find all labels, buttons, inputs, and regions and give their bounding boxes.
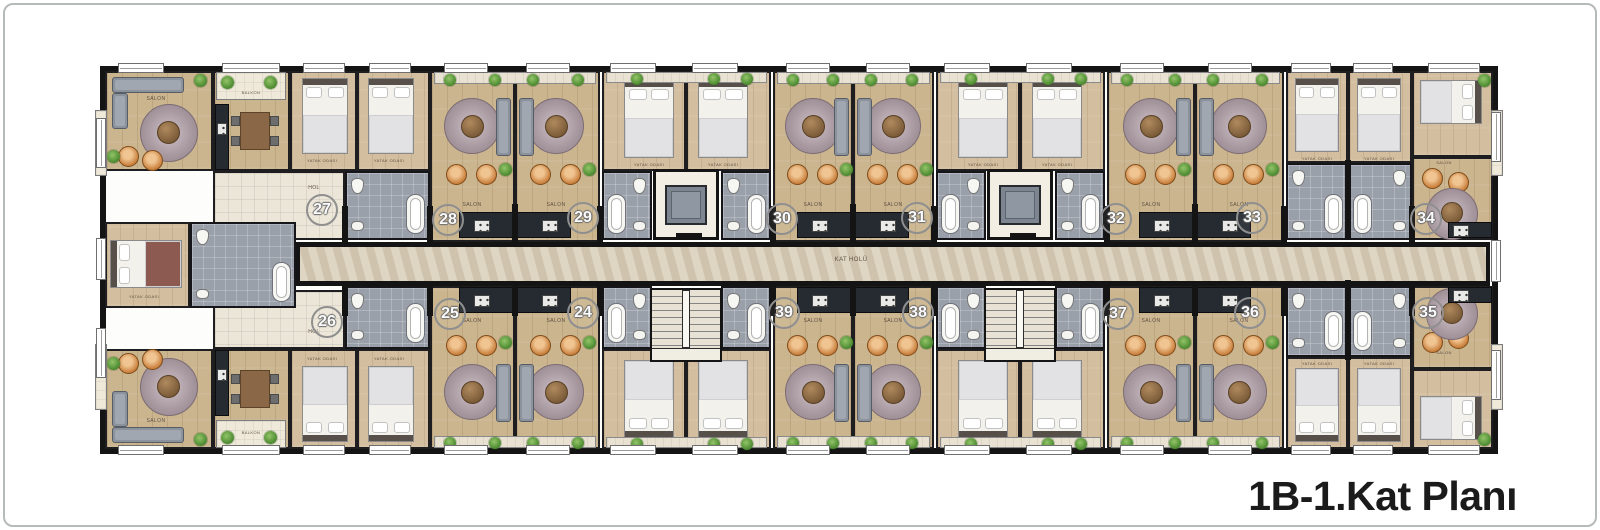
bed-blanket (1421, 397, 1452, 439)
bed-blanket (1421, 81, 1452, 123)
unit-badge: 28 (432, 204, 464, 236)
window-opening (369, 63, 411, 73)
elevator-door (1010, 233, 1036, 237)
window-opening (1208, 63, 1252, 73)
plan-title: 1B-1.Kat Planı (1248, 473, 1517, 520)
bed-pillow (1059, 89, 1077, 100)
stove (217, 369, 227, 381)
sink (351, 330, 364, 340)
window-opening (1120, 445, 1164, 455)
plant (583, 336, 596, 349)
coffee-table (1140, 381, 1163, 404)
sofa (834, 98, 849, 156)
bed-pillow (1382, 87, 1397, 98)
bed-blanket (303, 367, 347, 405)
room-label: YATAK ODASI (1349, 359, 1409, 369)
plant (194, 74, 207, 87)
plant (444, 74, 456, 86)
coffee-table (1140, 115, 1163, 138)
bed-blanket (369, 115, 413, 153)
plant (1266, 336, 1279, 349)
bed-pillow (306, 422, 322, 433)
bathroom (190, 222, 296, 308)
stove (474, 220, 490, 232)
plant (1478, 74, 1491, 87)
bed-blanket (145, 241, 181, 287)
bathtub (941, 303, 960, 343)
bed-pillow (629, 89, 647, 100)
coffee-table (461, 381, 484, 404)
elevator-car (999, 185, 1041, 225)
dining-chair (231, 136, 240, 146)
sink (727, 330, 740, 340)
sofa (1176, 364, 1191, 422)
bed-pillow (1462, 105, 1473, 120)
room-label: YATAK ODASI (1287, 154, 1347, 164)
stove (880, 295, 896, 307)
bed-pillow (1299, 422, 1314, 433)
wall-segment (342, 206, 348, 242)
unit-badge: 36 (1234, 297, 1266, 329)
bed-pillow (1462, 400, 1473, 415)
window-opening (610, 63, 656, 73)
unit-badge: 33 (1236, 202, 1268, 234)
plant (920, 163, 933, 176)
toilet (351, 178, 364, 194)
rattan-chair (787, 164, 808, 185)
bed-headboard (111, 241, 117, 287)
plant (741, 73, 753, 85)
window-opening (786, 63, 830, 73)
bed-pillow (1462, 421, 1473, 436)
rattan-chair (897, 164, 918, 185)
bathroom (1348, 286, 1412, 357)
room-label: YATAK ODASI (696, 428, 750, 438)
stove (1154, 295, 1170, 307)
bathtub (1324, 311, 1343, 351)
window-opening (786, 445, 830, 455)
window-opening (1291, 63, 1331, 73)
sofa (496, 364, 511, 422)
room-label: BALKON (226, 88, 276, 98)
bed-headboard (369, 435, 413, 441)
bed-headboard (1475, 397, 1481, 439)
room-label: YATAK ODASI (956, 428, 1010, 438)
plant (572, 74, 584, 86)
plant (965, 73, 977, 85)
bathroom (345, 286, 430, 349)
window-opening (1208, 445, 1252, 455)
sofa (519, 98, 534, 156)
wall-segment (1345, 280, 1351, 360)
coffee-table (1228, 381, 1251, 404)
stair-landing (986, 348, 1054, 360)
window-opening (1353, 63, 1393, 73)
room-label: SALON (1414, 158, 1474, 168)
stove (1453, 290, 1469, 302)
unit-badge: 32 (1100, 203, 1132, 235)
sink (1292, 338, 1305, 348)
plant (499, 163, 512, 176)
unit-badge: 27 (306, 194, 338, 226)
sink (633, 330, 646, 340)
window-opening (118, 63, 164, 73)
bathroom (1348, 163, 1412, 240)
toilet (727, 178, 740, 194)
bed-headboard (303, 79, 347, 85)
dining-chair (270, 394, 279, 404)
window-opening (866, 63, 910, 73)
bed-blanket (1358, 114, 1400, 151)
plant (1256, 437, 1268, 449)
elevator-car (665, 185, 707, 225)
stove (1154, 220, 1170, 232)
coffee-table (882, 115, 905, 138)
stair-divider (682, 290, 690, 348)
unit-badge: 29 (567, 202, 599, 234)
bed-pillow (328, 87, 344, 98)
rattan-chair (1125, 164, 1146, 185)
room-label: SALON (1129, 316, 1173, 326)
dining-chair (270, 116, 279, 126)
bed-pillow (1299, 87, 1314, 98)
unit-badge: 37 (1102, 298, 1134, 330)
rattan-chair (476, 335, 497, 356)
floor-plan-screenshot: KAT HOLÜSALONSALONSALONSALONSALONSALONSA… (0, 0, 1600, 530)
kitchen-counter (215, 350, 229, 416)
room-label: YATAK ODASI (622, 428, 676, 438)
bed-blanket (625, 118, 673, 157)
bed-pillow (394, 87, 410, 98)
toilet (351, 293, 364, 309)
toilet (1292, 293, 1305, 309)
bed (302, 78, 348, 154)
plant (1169, 437, 1181, 449)
plant (489, 74, 501, 86)
room-label: SALON (126, 416, 186, 426)
unit-badge: 30 (766, 203, 798, 235)
bathtub (941, 194, 960, 234)
bed-pillow (394, 422, 410, 433)
bed-blanket (1358, 369, 1400, 406)
bathtub (1353, 311, 1372, 351)
rattan-chair (142, 150, 163, 171)
rattan-chair (118, 146, 139, 167)
window-opening (369, 445, 411, 455)
rattan-chair (1155, 335, 1176, 356)
kitchen-counter (1448, 287, 1492, 303)
bed-pillow (372, 422, 388, 433)
toilet (1393, 293, 1406, 309)
rattan-chair (1213, 335, 1234, 356)
bed-blanket (959, 118, 1007, 157)
window-opening (944, 63, 990, 73)
bathtub (607, 303, 626, 343)
stove (880, 220, 896, 232)
bed-blanket (303, 115, 347, 153)
wall-segment (850, 204, 856, 242)
bed (698, 360, 748, 438)
bed-headboard (1358, 435, 1400, 441)
elevator-shaft (987, 169, 1053, 240)
coffee-table (802, 115, 825, 138)
toilet (967, 293, 980, 309)
bed-pillow (306, 87, 322, 98)
sofa (519, 364, 534, 422)
bed-pillow (119, 267, 130, 284)
room-label: HOL (294, 183, 334, 193)
bed (110, 240, 182, 288)
rattan-chair (817, 164, 838, 185)
bed (1032, 360, 1082, 438)
room-label: SALON (1414, 348, 1474, 358)
window-opening (610, 445, 656, 455)
sink (1061, 330, 1074, 340)
coffee-table (461, 115, 484, 138)
window-opening (866, 445, 910, 455)
bed (1295, 368, 1339, 442)
unit-badge: 26 (311, 306, 343, 338)
plant (1266, 163, 1279, 176)
bed-pillow (651, 89, 669, 100)
toilet (1292, 170, 1305, 186)
room-label: SALON (791, 200, 835, 210)
plant (920, 336, 933, 349)
rattan-chair (867, 164, 888, 185)
wall-segment (1281, 286, 1287, 316)
sink (1292, 221, 1305, 231)
window-opening (1491, 350, 1501, 400)
wall-segment (1281, 206, 1287, 242)
bathtub (406, 303, 425, 343)
stair-landing (652, 348, 720, 360)
plant (1042, 73, 1054, 85)
bed-pillow (328, 422, 344, 433)
bathtub (272, 262, 291, 302)
bed-pillow (725, 89, 743, 100)
plant (708, 73, 720, 85)
bed (624, 360, 674, 438)
bed-pillow (1037, 89, 1055, 100)
bathroom (1055, 171, 1105, 240)
bed-pillow (119, 244, 130, 261)
bed (368, 78, 414, 154)
wall-segment (427, 286, 433, 316)
coffee-table (157, 121, 180, 144)
stove (1453, 225, 1469, 237)
wall-segment (512, 204, 518, 242)
rattan-chair (1243, 335, 1264, 356)
bed-pillow (1361, 87, 1376, 98)
bathroom (345, 171, 430, 240)
bed (1420, 80, 1482, 124)
rattan-chair (142, 349, 163, 370)
room-label: YATAK ODASI (622, 160, 676, 170)
bed-pillow (985, 89, 1003, 100)
bed-pillow (1320, 87, 1335, 98)
rattan-chair (817, 335, 838, 356)
bed-pillow (1462, 84, 1473, 99)
unit-badge: 39 (768, 297, 800, 329)
plant (1178, 336, 1191, 349)
rattan-chair (1243, 164, 1264, 185)
bathtub (747, 194, 766, 234)
bed-blanket (699, 118, 747, 157)
coffee-table (1228, 115, 1251, 138)
plant (489, 437, 501, 449)
plant (840, 336, 853, 349)
coffee-table (1441, 202, 1463, 224)
wall-segment (1192, 286, 1198, 316)
bed-headboard (303, 435, 347, 441)
rattan-chair (560, 335, 581, 356)
window-opening (444, 63, 488, 73)
sofa (857, 98, 872, 156)
rattan-chair (1213, 164, 1234, 185)
bed (624, 80, 674, 158)
bathtub (607, 194, 626, 234)
plant (840, 163, 853, 176)
plant (107, 357, 120, 370)
room-label: YATAK ODASI (1349, 154, 1409, 164)
unit-badge: 25 (434, 298, 466, 330)
sink (633, 221, 646, 231)
toilet (727, 293, 740, 309)
bed (958, 360, 1008, 438)
plant (827, 74, 839, 86)
dining-chair (231, 394, 240, 404)
bed-pillow (703, 89, 721, 100)
bathroom (721, 286, 771, 349)
plant (1207, 74, 1219, 86)
sofa (1199, 364, 1214, 422)
bed (368, 366, 414, 442)
window-opening (1491, 112, 1501, 162)
dining-chair (270, 374, 279, 384)
sofa (834, 364, 849, 422)
bed-headboard (1358, 79, 1400, 85)
bathroom (1286, 163, 1348, 240)
bed-pillow (1361, 422, 1376, 433)
room-label: YATAK ODASI (696, 160, 750, 170)
stair-divider (1016, 290, 1024, 348)
coffee-table (545, 381, 568, 404)
window-opening (1428, 63, 1480, 73)
window-opening (692, 445, 738, 455)
unit-badge: 38 (902, 297, 934, 329)
stove (542, 295, 558, 307)
bathtub (1353, 194, 1372, 234)
bathroom (936, 171, 986, 240)
unit-badge: 24 (567, 297, 599, 329)
bed (1032, 80, 1082, 158)
bathroom (602, 286, 652, 349)
plant (741, 438, 753, 450)
sofa (1199, 98, 1214, 156)
room-label: YATAK ODASI (1030, 428, 1084, 438)
sink (967, 330, 980, 340)
sink (1061, 221, 1074, 231)
bed-headboard (1296, 79, 1338, 85)
rattan-chair (1155, 164, 1176, 185)
plant (1178, 163, 1191, 176)
window-opening (96, 238, 106, 280)
sink (1393, 221, 1406, 231)
window-opening (303, 445, 345, 455)
bed (1357, 78, 1401, 152)
bed (958, 80, 1008, 158)
bed-headboard (1475, 81, 1481, 123)
window-opening (96, 118, 106, 168)
room-label: YATAK ODASI (108, 292, 180, 302)
elevator-shaft (653, 169, 719, 240)
bed-blanket (959, 361, 1007, 400)
bathtub (1324, 194, 1343, 234)
sink (351, 221, 364, 231)
window-opening (1428, 445, 1480, 455)
coffee-table (882, 381, 905, 404)
rattan-chair (476, 164, 497, 185)
toilet (633, 178, 646, 194)
toilet (1061, 178, 1074, 194)
window-opening (96, 328, 106, 378)
window-opening (222, 63, 280, 73)
bathtub (406, 194, 425, 234)
stove (542, 220, 558, 232)
stove (812, 295, 828, 307)
stove (217, 123, 227, 135)
room-label: YATAK ODASI (358, 354, 420, 364)
window-opening (303, 63, 345, 73)
plant (787, 74, 799, 86)
rattan-chair (787, 335, 808, 356)
toilet (196, 229, 209, 245)
sofa (857, 364, 872, 422)
window-opening (526, 445, 570, 455)
bed-headboard (1296, 435, 1338, 441)
dining-chair (270, 136, 279, 146)
wall-segment (850, 286, 856, 316)
window-opening (1291, 445, 1331, 455)
plant (583, 163, 596, 176)
bed-blanket (1033, 361, 1081, 400)
window-opening (692, 63, 738, 73)
window-opening (1491, 240, 1501, 282)
rattan-chair (1422, 168, 1443, 189)
plant (527, 74, 539, 86)
bathtub (1081, 194, 1100, 234)
elevator-door (676, 233, 702, 237)
bathroom (1286, 286, 1348, 357)
bed (1357, 368, 1401, 442)
bathtub (747, 303, 766, 343)
window-opening (1120, 63, 1164, 73)
bed-blanket (1296, 369, 1338, 406)
bed-blanket (369, 367, 413, 405)
stove (812, 220, 828, 232)
toilet (1061, 293, 1074, 309)
room-label: YATAK ODASI (291, 156, 353, 166)
dining-chair (231, 116, 240, 126)
window-opening (444, 445, 488, 455)
bathroom (721, 171, 771, 240)
bathroom (1055, 286, 1105, 349)
window-opening (526, 63, 570, 73)
window-opening (222, 445, 280, 455)
bed-blanket (1033, 118, 1081, 157)
unit-badge: 35 (1412, 297, 1444, 329)
window-opening (944, 445, 990, 455)
